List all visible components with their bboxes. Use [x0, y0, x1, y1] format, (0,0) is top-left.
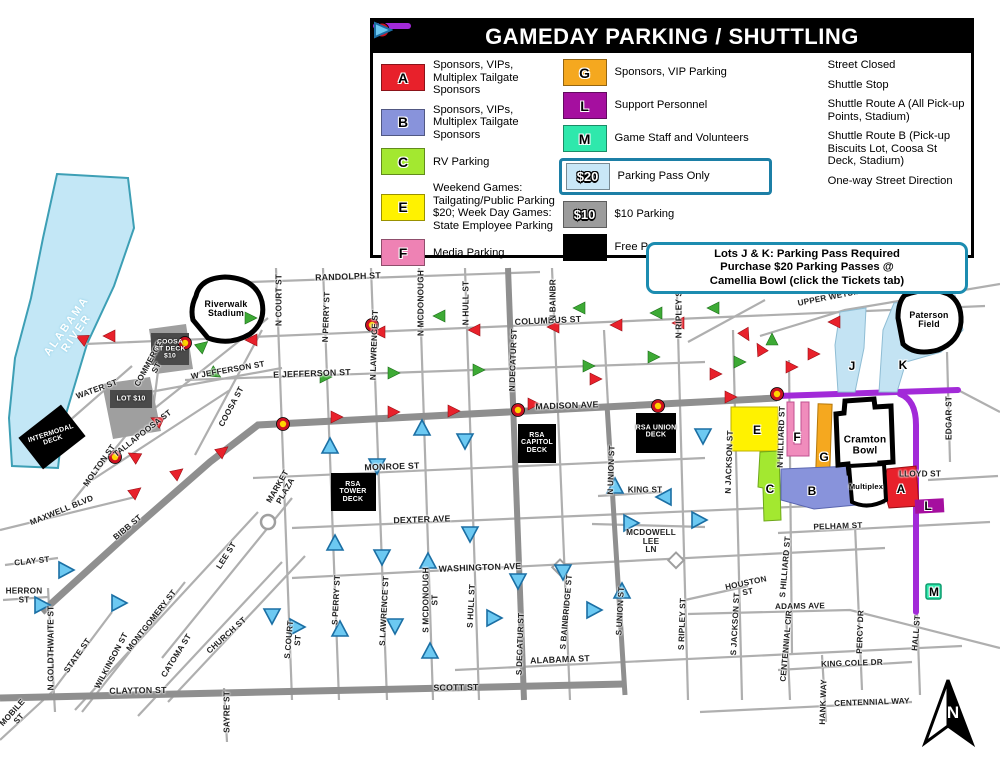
paterson-field — [898, 290, 961, 352]
legend-item-lot-m: M Game Staff and Volunteers — [563, 125, 772, 152]
pass-10-chip: $10 — [563, 201, 607, 228]
legend-item-lot-e: E Weekend Games: Tailgating/Public Parki… — [381, 182, 557, 232]
lot-c — [758, 451, 781, 521]
legend-item-one-way: One-way Street Direction — [778, 175, 965, 188]
free-parking-chip — [563, 234, 607, 261]
compass-n-label: N — [947, 703, 959, 723]
roads-thick — [0, 268, 777, 700]
legend-item-lot-b: B Sponsors, VIPs, Multiplex Tailgate Spo… — [381, 104, 557, 142]
lot-e — [731, 407, 778, 451]
shuttle-route-b-arrows — [195, 302, 778, 383]
lot-l-chip: L — [563, 92, 607, 119]
lot-b — [781, 466, 856, 509]
legend-item-lot-a: A Sponsors, VIPs, Multiplex Tailgate Spo… — [381, 59, 557, 97]
lot-l — [915, 498, 945, 513]
lot-f — [787, 402, 809, 456]
gameday-parking-map: RANDOLPH ST COLUMBUS ST E JEFFERSON ST W… — [0, 0, 1000, 773]
legend-item-street-closed: Street Closed — [778, 59, 965, 72]
legend-item-lot-f: F Media Parking — [381, 239, 557, 266]
pass-20-chip: $20 — [566, 163, 610, 190]
legend-item-lot-c: C RV Parking — [381, 148, 557, 175]
legend-item-route-a: Shuttle Route A (All Pick-up Points, Sta… — [778, 98, 965, 123]
legend-item-10-parking: $10 $10 Parking — [563, 201, 772, 228]
lot-g — [816, 404, 832, 468]
m-chip — [926, 584, 941, 599]
lot-a-chip: A — [381, 64, 425, 91]
legend-item-lot-g: G Sponsors, VIP Parking — [563, 59, 772, 86]
roundabout — [261, 515, 275, 529]
interchange — [668, 553, 684, 569]
lot-c-chip: C — [381, 148, 425, 175]
lot-f-chip: F — [381, 239, 425, 266]
lot-g-chip: G — [563, 59, 607, 86]
lot-e-chip: E — [381, 194, 425, 221]
lot-a — [883, 466, 919, 508]
legend-item-shuttle-stop: Shuttle Stop — [778, 79, 965, 92]
riverwalk-stadium — [192, 277, 263, 341]
legend: GAMEDAY PARKING / SHUTTLING A Sponsors, … — [370, 18, 974, 258]
lot-b-chip: B — [381, 109, 425, 136]
cramton-bowl — [836, 399, 893, 473]
legend-item-parking-pass-only: $20 Parking Pass Only — [559, 158, 772, 195]
legend-item-lot-l: L Support Personnel — [563, 92, 772, 119]
lot-m-chip: M — [563, 125, 607, 152]
lots-jk-note: Lots J & K: Parking Pass Required Purcha… — [646, 242, 968, 294]
legend-title: GAMEDAY PARKING / SHUTTLING — [373, 21, 971, 53]
legend-item-route-b: Shuttle Route B (Pick-up Biscuits Lot, C… — [778, 130, 965, 168]
multiplex-bldg — [849, 464, 886, 506]
